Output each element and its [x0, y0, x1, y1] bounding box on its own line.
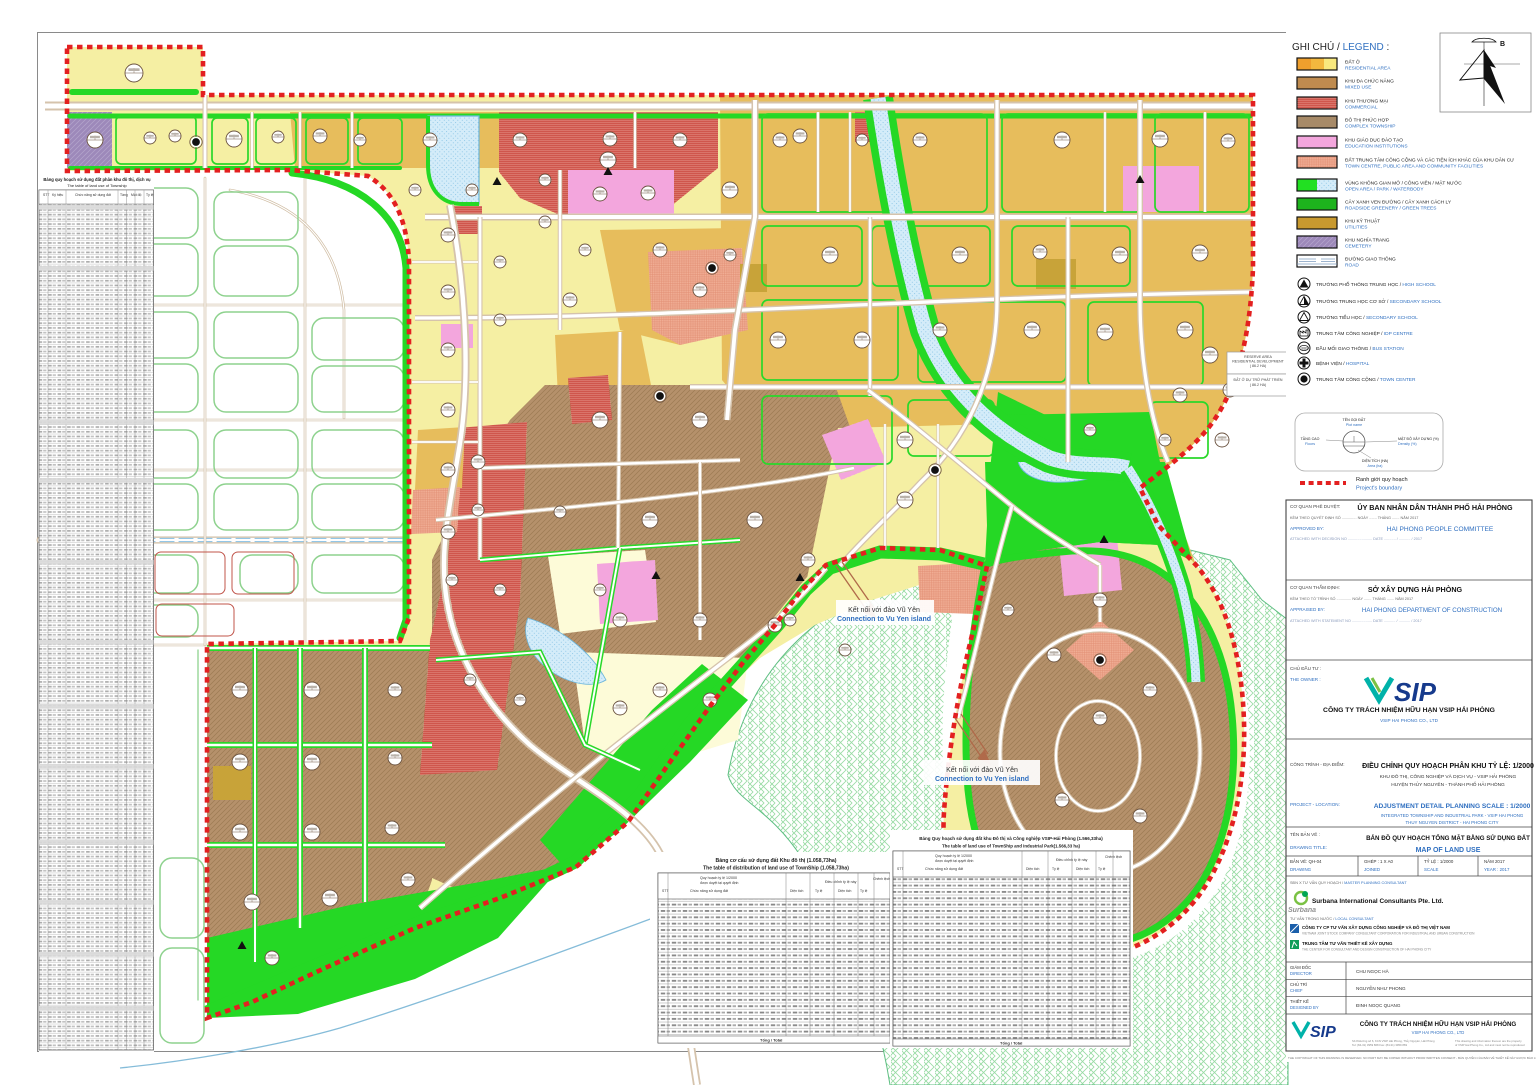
svg-text:BẢN ĐỒ QUY HOẠCH TỔNG MẶT BẰNG: BẢN ĐỒ QUY HOẠCH TỔNG MẶT BẰNG SỬ DỤNG Đ… — [1366, 834, 1530, 842]
svg-text:TRƯỜNG TRUNG HỌC CƠ SỞ / SECON: TRƯỜNG TRUNG HỌC CƠ SỞ / SECONDARY SCHOO… — [1316, 298, 1442, 305]
svg-text:VIETNAM JOINT STOCK COMPANY CO: VIETNAM JOINT STOCK COMPANY CONSULTANT C… — [1302, 932, 1475, 936]
svg-text:STT: STT — [43, 193, 49, 197]
svg-text:TƯ VẤN TRONG NƯỚC / LOCAL CONS: TƯ VẤN TRONG NƯỚC / LOCAL CONSULTANT — [1290, 916, 1375, 921]
svg-text:Chức năng sử dụng đất: Chức năng sử dụng đất — [75, 193, 111, 197]
svg-text:GHI CHÚ / LEGEND :: GHI CHÚ / LEGEND : — [1292, 40, 1389, 53]
svg-text:Kết nối với đảo Vũ Yên: Kết nối với đảo Vũ Yên — [848, 605, 920, 614]
svg-text:MAP OF LAND USE: MAP OF LAND USE — [1416, 847, 1481, 854]
svg-text:Connection to Vu Yen island: Connection to Vu Yen island — [935, 776, 1029, 783]
svg-text:DESIGNED BY: DESIGNED BY — [1290, 1005, 1319, 1010]
svg-text:OPEN AREA / PARK / WATERBODY: OPEN AREA / PARK / WATERBODY — [1345, 187, 1424, 193]
svg-text:KHU ĐA CHỨC NĂNG: KHU ĐA CHỨC NĂNG — [1345, 78, 1394, 85]
svg-text:Tỷ lệ: Tỷ lệ — [860, 889, 867, 893]
svg-text:EDUCATION INSTITUTIONS: EDUCATION INSTITUTIONS — [1345, 144, 1408, 150]
svg-text:JOINED: JOINED — [1364, 867, 1380, 872]
svg-text:NĂM 2017: NĂM 2017 — [1484, 859, 1505, 864]
svg-text:TỶ LỆ : 1/2000: TỶ LỆ : 1/2000 — [1424, 859, 1454, 864]
svg-text:Diện tích: Diện tích — [1076, 867, 1089, 871]
svg-text:RESIDENTIAL DEVELOPMENT: RESIDENTIAL DEVELOPMENT — [1232, 360, 1284, 364]
svg-text:CEMETERY: CEMETERY — [1345, 244, 1372, 250]
svg-text:Chức năng sử dụng đất: Chức năng sử dụng đất — [690, 889, 728, 893]
svg-text:Tỷ lệ: Tỷ lệ — [815, 889, 822, 893]
svg-text:THE CENTER FOR CONSULTANT AND: THE CENTER FOR CONSULTANT AND DESIGN CON… — [1302, 948, 1432, 952]
svg-text:Density (%): Density (%) — [1398, 442, 1417, 446]
svg-text:được duyệt tại quyết định: được duyệt tại quyết định — [700, 881, 739, 885]
svg-text:CƠ QUAN PHÊ DUYỆT:: CƠ QUAN PHÊ DUYỆT: — [1290, 502, 1340, 509]
svg-text:PROJECT - LOCATION:: PROJECT - LOCATION: — [1290, 802, 1340, 807]
svg-text:KHU KỸ THUẬT: KHU KỸ THUẬT — [1345, 218, 1380, 225]
svg-text:ATTACHED WITH STATEMENT NO ..: ATTACHED WITH STATEMENT NO .............… — [1290, 619, 1422, 623]
svg-text:ROAD: ROAD — [1345, 263, 1359, 269]
svg-text:The table of land use of TownS: The table of land use of TownShip and In… — [942, 844, 1081, 849]
svg-text:được duyệt tại quyết định: được duyệt tại quyết định — [935, 859, 974, 863]
svg-text:COMMERCIAL: COMMERCIAL — [1345, 105, 1378, 111]
svg-text:KHU GIÁO DỤC ĐÀO TẠO: KHU GIÁO DỤC ĐÀO TẠO — [1345, 137, 1403, 144]
svg-text:Mật độ: Mật độ — [131, 193, 141, 197]
svg-text:Chênh lệch: Chênh lệch — [873, 877, 890, 881]
svg-text:ĐƯỜNG GIAO THÔNG: ĐƯỜNG GIAO THÔNG — [1345, 256, 1396, 263]
svg-text:ĐẤT Ở DỰ TRỮ PHÁT TRIỂN: ĐẤT Ở DỰ TRỮ PHÁT TRIỂN — [1234, 377, 1283, 382]
svg-text:Tổng / Total: Tổng / Total — [1000, 1041, 1022, 1046]
svg-text:Surbana: Surbana — [1288, 907, 1316, 914]
svg-text:TÊN BẢN VẼ :: TÊN BẢN VẼ : — [1290, 830, 1320, 837]
svg-text:DRAWING: DRAWING — [1290, 867, 1312, 872]
svg-text:MẬT ĐỘ XÂY DỰNG (%): MẬT ĐỘ XÂY DỰNG (%) — [1398, 436, 1439, 441]
svg-text:CÔNG TY CP TƯ VẤN XÂY DỰNG CÔN: CÔNG TY CP TƯ VẤN XÂY DỰNG CÔNG NGHIỆP V… — [1302, 925, 1450, 930]
svg-text:ĐẦU MỐI GIAO THÔNG / BUS STATI: ĐẦU MỐI GIAO THÔNG / BUS STATION — [1316, 345, 1404, 352]
svg-text:( 86.2 HA): ( 86.2 HA) — [1250, 383, 1266, 387]
svg-text:THIẾT KẾ: THIẾT KẾ — [1290, 999, 1309, 1004]
svg-text:CHỦ ĐẦU TƯ :: CHỦ ĐẦU TƯ : — [1290, 665, 1321, 671]
svg-text:Diện tích: Diện tích — [1026, 867, 1039, 871]
svg-text:B: B — [1500, 41, 1505, 48]
svg-text:Tỷ lệ: Tỷ lệ — [146, 193, 153, 197]
svg-text:Tỷ lệ: Tỷ lệ — [1098, 867, 1105, 871]
svg-text:Connection to Vu Yen island: Connection to Vu Yen island — [837, 616, 931, 623]
svg-text:Project's boundary: Project's boundary — [1356, 486, 1402, 492]
svg-text:Diện tích: Diện tích — [790, 889, 803, 893]
svg-text:Bảng Quy hoạch sử dụng đất khu: Bảng Quy hoạch sử dụng đất khu Đô thị và… — [919, 835, 1103, 841]
svg-text:RESIDENTIAL AREA: RESIDENTIAL AREA — [1345, 66, 1391, 72]
svg-text:TRƯỜNG TIỂU HỌC / SECONDARY SC: TRƯỜNG TIỂU HỌC / SECONDARY SCHOOL — [1316, 314, 1418, 321]
svg-text:Chênh lệch: Chênh lệch — [1105, 855, 1122, 859]
svg-text:GHÉP : 1 X A0: GHÉP : 1 X A0 — [1364, 859, 1394, 864]
svg-text:Ranh giới quy hoạch: Ranh giới quy hoạch — [1356, 477, 1408, 483]
svg-text:CHỦ TRÌ: CHỦ TRÌ — [1290, 982, 1307, 987]
svg-text:( 86.2 HA): ( 86.2 HA) — [1250, 364, 1266, 368]
svg-text:KÈM THEO TỜ TRÌNH SỐ .........: KÈM THEO TỜ TRÌNH SỐ .............. NGÀY… — [1290, 596, 1413, 601]
svg-text:KÈM THEO QUYẾT ĐỊNH SỐ .......: KÈM THEO QUYẾT ĐỊNH SỐ .............. NG… — [1290, 515, 1418, 520]
svg-text:UTILITIES: UTILITIES — [1345, 225, 1367, 231]
svg-text:Ký hiệu: Ký hiệu — [52, 193, 63, 197]
svg-text:The table of distribution of l: The table of distribution of land use of… — [703, 866, 849, 872]
svg-text:CÔNG TY TRÁCH NHIỆM HỮU HẠN VS: CÔNG TY TRÁCH NHIỆM HỮU HẠN VSIP HẢI PHÒ… — [1323, 705, 1495, 714]
svg-text:ĐINH NGỌC QUANG: ĐINH NGỌC QUANG — [1356, 1003, 1401, 1008]
svg-text:BẢN VẼ: QH-04: BẢN VẼ: QH-04 — [1290, 859, 1322, 864]
svg-text:STT: STT — [662, 889, 668, 893]
svg-text:of VSIP Hai Phong Co., Ltd and: of VSIP Hai Phong Co., Ltd and must not … — [1455, 1043, 1525, 1047]
svg-text:ỦY BAN NHÂN DÂN THÀNH PHỐ HẢI: ỦY BAN NHÂN DÂN THÀNH PHỐ HẢI PHÒNG — [1357, 502, 1513, 512]
svg-text:VSIP HAI PHONG CO., LTD: VSIP HAI PHONG CO., LTD — [1412, 1030, 1465, 1035]
svg-text:KHU NGHĨA TRANG: KHU NGHĨA TRANG — [1345, 237, 1390, 244]
svg-text:NGUYỄN NHƯ PHONG: NGUYỄN NHƯ PHONG — [1356, 985, 1406, 991]
svg-text:ĐÔ THỊ PHỨC HỢP: ĐÔ THỊ PHỨC HỢP — [1345, 117, 1389, 124]
svg-text:APPROVED BY:: APPROVED BY: — [1290, 526, 1324, 531]
svg-text:DIRECTOR: DIRECTOR — [1290, 971, 1312, 976]
svg-text:Tổng / Total: Tổng / Total — [760, 1038, 782, 1043]
svg-text:Chức năng sử dụng đất: Chức năng sử dụng đất — [925, 867, 963, 871]
svg-text:YEAR : 2017: YEAR : 2017 — [1484, 867, 1510, 872]
svg-text:ROADSIDE GREENERY / GREEN TREE: ROADSIDE GREENERY / GREEN TREES — [1345, 206, 1436, 212]
svg-text:CÔNG TRÌNH - ĐỊA ĐIỂM:: CÔNG TRÌNH - ĐỊA ĐIỂM: — [1290, 761, 1345, 767]
svg-text:ĐẤT Ở: ĐẤT Ở — [1345, 59, 1360, 66]
svg-text:SIP: SIP — [1310, 1024, 1336, 1041]
svg-text:COMPLEX TOWNSHIP: COMPLEX TOWNSHIP — [1345, 124, 1395, 130]
svg-text:CƠ QUAN THẨM ĐỊNH:: CƠ QUAN THẨM ĐỊNH: — [1290, 584, 1340, 590]
svg-text:CÂY XANH VEN ĐƯỜNG / CÂY XANH: CÂY XANH VEN ĐƯỜNG / CÂY XANH CÁCH LY — [1345, 199, 1452, 206]
svg-text:SĐN X TƯ VẤN QUY HOẠCH / MASTE: SĐN X TƯ VẤN QUY HOẠCH / MASTER PLANNING… — [1290, 881, 1407, 885]
svg-text:TÊN GỌI ĐẤT: TÊN GỌI ĐẤT — [1343, 417, 1367, 422]
svg-text:Area (ha): Area (ha) — [1368, 464, 1383, 468]
svg-text:Tel: (84-31) 3959 868 Fax: (: Tel: (84-31) 3959 868 Fax: (84-31) 3959 … — [1352, 1043, 1407, 1047]
svg-text:Floors: Floors — [1305, 442, 1315, 446]
svg-text:TRƯỜNG PHỔ THÔNG TRUNG HỌC / H: TRƯỜNG PHỔ THÔNG TRUNG HỌC / HIGH SCHOOL — [1316, 281, 1436, 288]
svg-text:Bảng quy hoạch sử dụng đất phâ: Bảng quy hoạch sử dụng đất phân khu đô t… — [43, 177, 151, 182]
svg-text:SỞ XÂY DỰNG HẢI PHÒNG: SỞ XÂY DỰNG HẢI PHÒNG — [1368, 585, 1463, 594]
svg-text:INTEGRATED TOWNSHIP AND INDUST: INTEGRATED TOWNSHIP AND INDUSTRIAL PARK … — [1381, 813, 1524, 818]
svg-text:CHIEF: CHIEF — [1290, 988, 1303, 993]
svg-text:KHU THƯƠNG MẠI: KHU THƯƠNG MẠI — [1345, 99, 1388, 105]
svg-text:VSIP HAI PHONG CO., LTD: VSIP HAI PHONG CO., LTD — [1380, 718, 1438, 723]
svg-text:HAI PHONG PEOPLE COMMITTEE: HAI PHONG PEOPLE COMMITTEE — [1387, 526, 1494, 533]
svg-text:TRUNG TÂM CÔNG CỘNG / TOWN CEN: TRUNG TÂM CÔNG CỘNG / TOWN CENTER — [1316, 376, 1416, 383]
svg-text:ATTACHED WITH DECISION NO ...: ATTACHED WITH DECISION NO ..............… — [1290, 537, 1422, 541]
svg-text:SCALE: SCALE — [1424, 867, 1438, 872]
svg-text:SIP: SIP — [1394, 677, 1437, 707]
svg-text:APPRAISED BY:: APPRAISED BY: — [1290, 607, 1325, 612]
svg-text:RESERVE AREA: RESERVE AREA — [1244, 355, 1272, 359]
svg-text:CHU NGỌC HÀ: CHU NGỌC HÀ — [1356, 968, 1390, 974]
svg-text:CÔNG TY TRÁCH NHIỆM HỮU HẠN VS: CÔNG TY TRÁCH NHIỆM HỮU HẠN VSIP HẢI PHÒ… — [1360, 1020, 1517, 1028]
svg-text:Quy hoạch tỷ lệ 1/2000: Quy hoạch tỷ lệ 1/2000 — [935, 854, 972, 858]
svg-text:GIÁM ĐỐC: GIÁM ĐỐC — [1290, 965, 1311, 970]
svg-text:THE OWNER :: THE OWNER : — [1290, 677, 1321, 682]
svg-text:Tỷ lệ: Tỷ lệ — [1052, 867, 1059, 871]
svg-text:TOWN CENTRE, PUBLIC AREA AND C: TOWN CENTRE, PUBLIC AREA AND COMMUNITY F… — [1345, 164, 1483, 170]
svg-text:Bảng cơ cấu sử dụng đất Khu đô: Bảng cơ cấu sử dụng đất Khu đô thị (1.05… — [715, 857, 836, 864]
svg-text:HAI PHONG DEPARTMENT OF CONSTR: HAI PHONG DEPARTMENT OF CONSTRUCTION — [1362, 607, 1502, 614]
svg-text:STT: STT — [897, 867, 903, 871]
svg-text:THE COPYRIGHT OF THIS DRAWING: THE COPYRIGHT OF THIS DRAWING IS RESERVE… — [1288, 1055, 1536, 1060]
svg-text:DIỆN TÍCH (HA): DIỆN TÍCH (HA) — [1362, 458, 1388, 463]
svg-text:Điều chỉnh tỷ lệ này: Điều chỉnh tỷ lệ này — [825, 880, 857, 884]
svg-text:DRAWING TITLE:: DRAWING TITLE: — [1290, 845, 1327, 850]
svg-text:TẦNG CAO: TẦNG CAO — [1301, 437, 1320, 441]
svg-text:ADJUSTMENT DETAIL PLANNING SCA: ADJUSTMENT DETAIL PLANNING SCALE : 1/200… — [1374, 803, 1531, 810]
svg-text:Plot name: Plot name — [1346, 423, 1362, 427]
svg-text:Surbana International Consulta: Surbana International Consultants Pte. L… — [1312, 898, 1444, 905]
svg-text:Kết nối với đảo Vũ Yên: Kết nối với đảo Vũ Yên — [946, 765, 1018, 774]
svg-text:THUY NGUYEN DISTRICT - HAI PHO: THUY NGUYEN DISTRICT - HAI PHONG CITY — [1405, 820, 1498, 825]
svg-text:The table of land use of Towns: The table of land use of Township — [67, 183, 127, 188]
svg-text:BUS: BUS — [1302, 347, 1310, 351]
svg-text:Quy hoạch tỷ lệ 1/2000: Quy hoạch tỷ lệ 1/2000 — [700, 876, 737, 880]
svg-text:Diện tích: Diện tích — [838, 889, 851, 893]
svg-text:TRUNG TÂM TƯ VẤN THIẾT KẾ XÂY: TRUNG TÂM TƯ VẤN THIẾT KẾ XÂY DỰNG — [1302, 941, 1393, 946]
svg-text:MIXED USE: MIXED USE — [1345, 85, 1371, 91]
